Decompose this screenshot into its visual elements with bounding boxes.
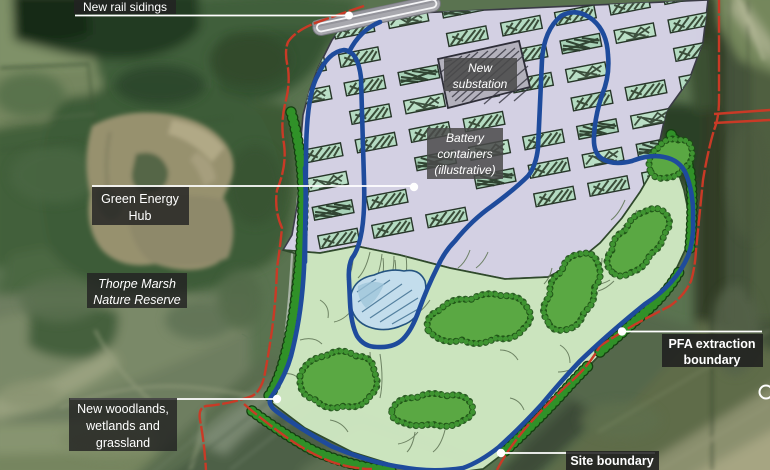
svg-text:New rail sidings: New rail sidings (83, 0, 167, 14)
svg-text:Site boundary: Site boundary (570, 454, 653, 468)
